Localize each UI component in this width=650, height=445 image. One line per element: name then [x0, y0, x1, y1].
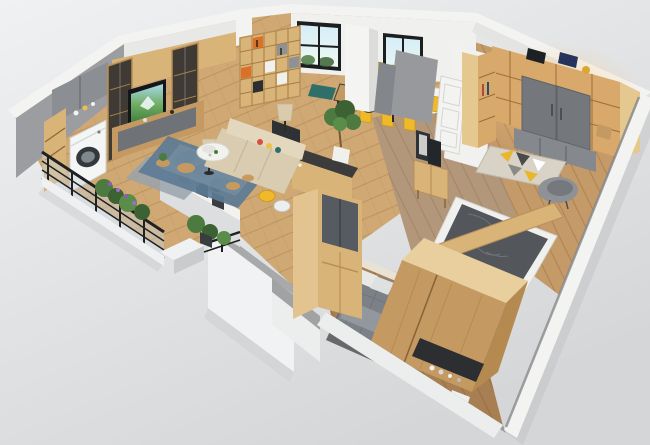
tall-glass-cabinet [293, 189, 362, 319]
gray-partition-panel [389, 50, 438, 124]
render-canvas [0, 0, 650, 445]
apartment-3d-floorplan-render [0, 0, 650, 445]
window-left [297, 21, 341, 71]
white-column [345, 24, 369, 112]
